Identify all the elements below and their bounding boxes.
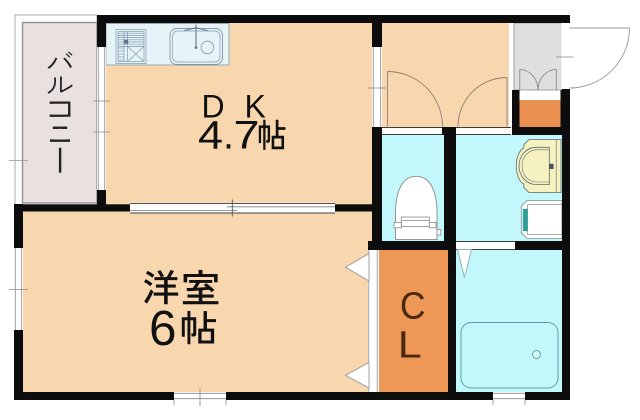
svg-text:.: . xyxy=(223,114,234,158)
svg-text:C: C xyxy=(400,286,426,328)
svg-text:6: 6 xyxy=(149,301,177,356)
svg-text:L: L xyxy=(398,325,422,367)
svg-text:4: 4 xyxy=(198,114,223,158)
svg-text:7: 7 xyxy=(234,114,260,158)
